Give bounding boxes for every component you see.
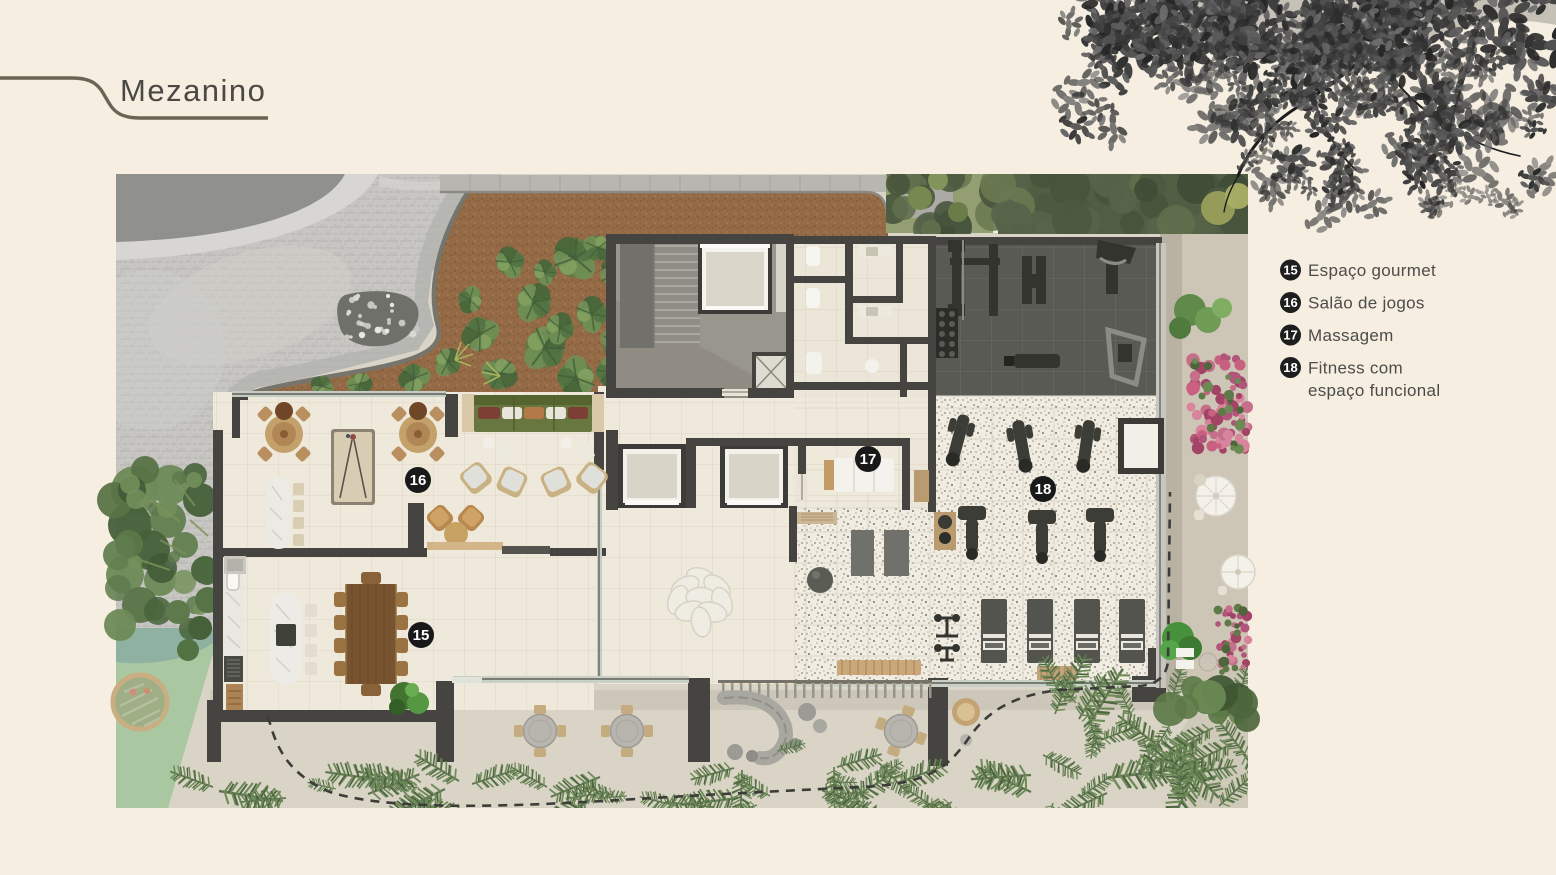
svg-text:15: 15: [1283, 263, 1297, 278]
svg-text:17: 17: [860, 451, 877, 468]
svg-text:Salão de jogos: Salão de jogos: [1308, 294, 1425, 313]
svg-text:18: 18: [1283, 360, 1297, 375]
svg-text:18: 18: [1035, 481, 1052, 498]
svg-text:16: 16: [410, 472, 427, 489]
svg-text:17: 17: [1283, 328, 1297, 343]
svg-text:15: 15: [413, 627, 430, 644]
svg-text:Fitness com: Fitness com: [1308, 359, 1403, 378]
svg-text:espaço funcional: espaço funcional: [1308, 381, 1440, 400]
svg-text:Massagem: Massagem: [1308, 326, 1394, 345]
svg-text:16: 16: [1283, 295, 1297, 310]
svg-text:Mezanino: Mezanino: [120, 73, 266, 108]
svg-text:Espaço gourmet: Espaço gourmet: [1308, 261, 1436, 280]
